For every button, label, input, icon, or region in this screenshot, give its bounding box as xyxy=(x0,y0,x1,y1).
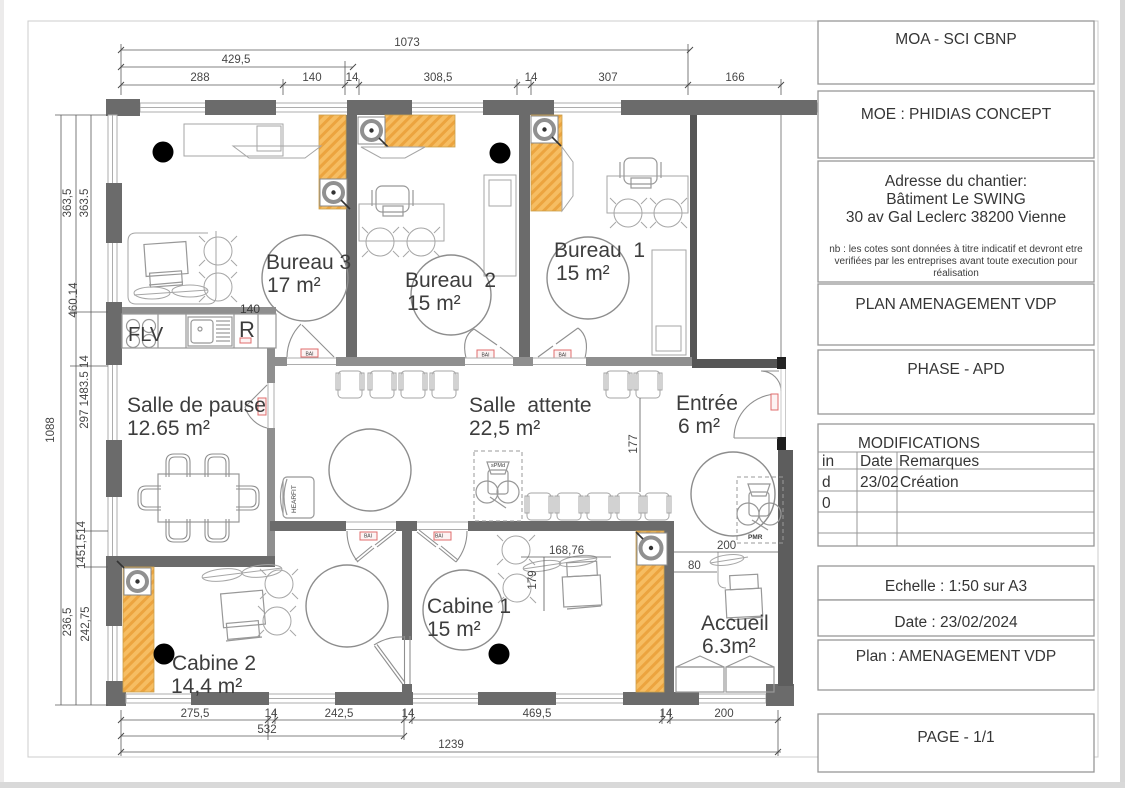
svg-text:15 m²: 15 m² xyxy=(556,262,610,285)
svg-text:Date: Date xyxy=(860,453,893,470)
svg-text:PHASE - APD: PHASE - APD xyxy=(907,361,1004,378)
svg-text:in: in xyxy=(822,453,834,470)
svg-text:réalisation: réalisation xyxy=(933,268,979,279)
svg-text:30 av Gal Leclerc 38200 Vienne: 30 av Gal Leclerc 38200 Vienne xyxy=(846,209,1066,226)
svg-text:275,5: 275,5 xyxy=(181,708,210,720)
svg-text:PLAN AMENAGEMENT VDP: PLAN AMENAGEMENT VDP xyxy=(855,296,1056,313)
svg-text:80: 80 xyxy=(688,560,701,572)
svg-text:166: 166 xyxy=(725,72,744,84)
svg-text:140: 140 xyxy=(302,72,321,84)
svg-text:363.5: 363.5 xyxy=(79,189,91,218)
svg-text:nb : les cotes sont données à: nb : les cotes sont données à titre indi… xyxy=(829,244,1083,255)
svg-text:Bureau 1: Bureau 1 xyxy=(554,239,645,262)
svg-text:14: 14 xyxy=(525,72,538,84)
svg-text:288: 288 xyxy=(190,72,209,84)
svg-text:15 m²: 15 m² xyxy=(407,292,461,315)
svg-text:Date : 23/02/2024: Date : 23/02/2024 xyxy=(894,614,1018,631)
svg-text:6.3m²: 6.3m² xyxy=(702,635,756,658)
svg-text:179: 179 xyxy=(527,570,539,589)
svg-text:297 1483.5 14: 297 1483.5 14 xyxy=(79,355,91,429)
svg-text:363,5: 363,5 xyxy=(62,189,74,218)
svg-text:Bureau 3: Bureau 3 xyxy=(266,251,351,274)
svg-text:Adresse du chantier:: Adresse du chantier: xyxy=(885,173,1027,190)
svg-text:15 m²: 15 m² xyxy=(427,618,481,641)
svg-text:MODIFICATIONS: MODIFICATIONS xyxy=(858,435,980,452)
svg-text:12.65 m²: 12.65 m² xyxy=(127,417,210,440)
svg-text:14: 14 xyxy=(402,708,415,720)
svg-text:1073: 1073 xyxy=(394,37,420,49)
svg-text:Salle de pause: Salle de pause xyxy=(127,394,266,417)
svg-text:0: 0 xyxy=(822,495,831,512)
svg-text:BAI: BAI xyxy=(435,534,443,540)
svg-text:Cabine 1: Cabine 1 xyxy=(427,595,511,618)
svg-text:FLV: FLV xyxy=(128,324,164,346)
svg-text:23/02: 23/02 xyxy=(860,474,899,491)
svg-text:BAI: BAI xyxy=(364,534,372,540)
svg-text:Bâtiment Le SWING: Bâtiment Le SWING xyxy=(886,191,1026,208)
svg-text:22,5 m²: 22,5 m² xyxy=(469,417,540,440)
svg-text:Echelle : 1:50 sur A3: Echelle : 1:50 sur A3 xyxy=(885,578,1027,595)
svg-text:Création: Création xyxy=(900,474,959,491)
svg-text:sPMd: sPMd xyxy=(491,463,505,469)
svg-text:Accueil: Accueil xyxy=(701,612,769,635)
svg-text:14,4 m²: 14,4 m² xyxy=(171,675,242,698)
svg-text:14: 14 xyxy=(660,708,673,720)
svg-text:Plan : AMENAGEMENT VDP: Plan : AMENAGEMENT VDP xyxy=(856,648,1056,665)
svg-text:200: 200 xyxy=(717,540,736,552)
svg-text:1088: 1088 xyxy=(45,417,57,443)
svg-text:verifiées par les entreprises: verifiées par les entreprises avant tout… xyxy=(835,256,1079,267)
svg-text:PMR: PMR xyxy=(748,534,763,541)
svg-text:Cabine 2: Cabine 2 xyxy=(172,652,256,675)
svg-text:Salle attente: Salle attente xyxy=(469,394,592,417)
svg-text:307: 307 xyxy=(598,72,617,84)
svg-text:PAGE - 1/1: PAGE - 1/1 xyxy=(917,729,994,746)
svg-text:242,75: 242,75 xyxy=(80,606,92,641)
svg-text:308,5: 308,5 xyxy=(424,72,453,84)
svg-text:17 m²: 17 m² xyxy=(267,274,321,297)
svg-text:460.14: 460.14 xyxy=(68,282,80,318)
svg-text:532: 532 xyxy=(257,724,276,736)
svg-text:MOE : PHIDIAS CONCEPT: MOE : PHIDIAS CONCEPT xyxy=(861,106,1052,123)
svg-text:MOA - SCI CBNP: MOA - SCI CBNP xyxy=(895,31,1016,48)
svg-text:d: d xyxy=(822,474,831,491)
svg-text:BAI: BAI xyxy=(305,352,313,358)
svg-text:429,5: 429,5 xyxy=(222,54,251,66)
svg-text:177: 177 xyxy=(628,434,640,453)
svg-text:236,5: 236,5 xyxy=(62,608,74,637)
svg-text:140: 140 xyxy=(240,302,260,316)
svg-text:HEARFIT: HEARFIT xyxy=(291,485,298,513)
svg-text:469,5: 469,5 xyxy=(523,708,552,720)
svg-text:1451,514: 1451,514 xyxy=(76,520,88,569)
svg-text:Remarques: Remarques xyxy=(899,453,979,470)
svg-text:6 m²: 6 m² xyxy=(678,415,720,438)
svg-text:200: 200 xyxy=(714,708,733,720)
svg-text:14: 14 xyxy=(265,708,278,720)
svg-text:Bureau 2: Bureau 2 xyxy=(405,269,496,292)
svg-text:242,5: 242,5 xyxy=(325,708,354,720)
svg-text:168,76: 168,76 xyxy=(549,545,584,557)
svg-text:14: 14 xyxy=(346,72,359,84)
svg-text:Entrée: Entrée xyxy=(676,392,738,415)
svg-text:1239: 1239 xyxy=(438,739,464,751)
